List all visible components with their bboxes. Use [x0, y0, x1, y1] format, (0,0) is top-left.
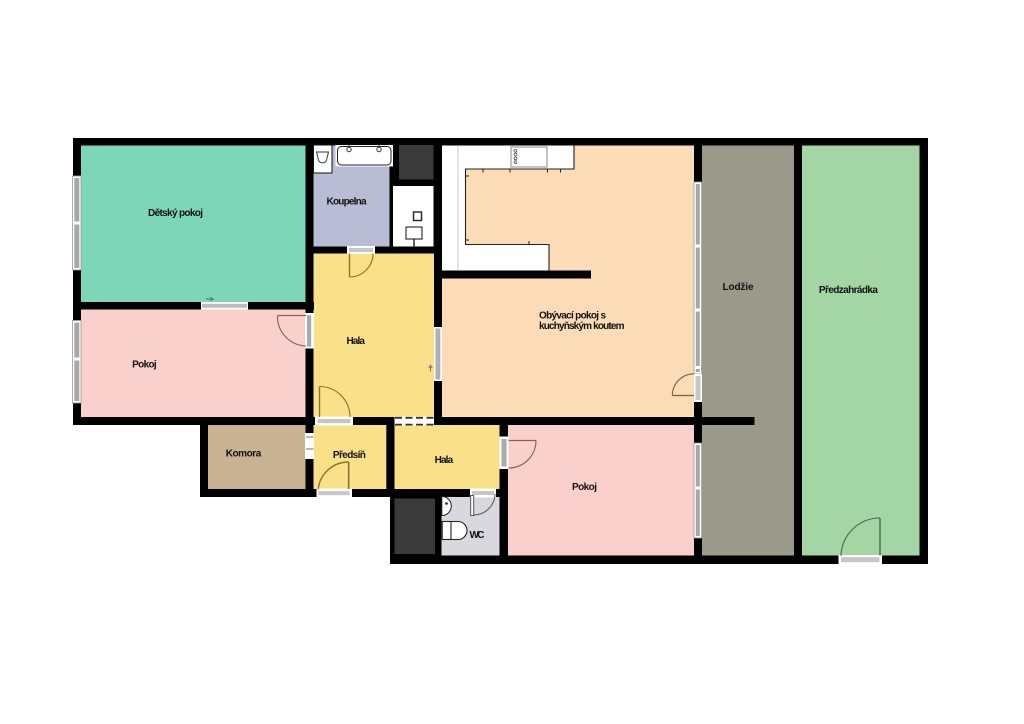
svg-text:Hala: Hala — [435, 455, 454, 466]
svg-text:Pokoj: Pokoj — [132, 360, 157, 371]
svg-text:WC: WC — [470, 530, 485, 541]
svg-text:kuchyňským koutem: kuchyňským koutem — [539, 321, 625, 332]
svg-text:Dětský pokoj: Dětský pokoj — [148, 208, 203, 219]
svg-text:Předzahrádka: Předzahrádka — [819, 285, 878, 296]
svg-text:Předsíň: Předsíň — [333, 450, 366, 461]
svg-text:Hala: Hala — [346, 336, 365, 347]
svg-text:Komora: Komora — [226, 449, 262, 460]
svg-text:Pokoj: Pokoj — [572, 482, 597, 493]
svg-text:Koupelna: Koupelna — [327, 197, 367, 208]
svg-text:Lodžie: Lodžie — [723, 282, 754, 293]
